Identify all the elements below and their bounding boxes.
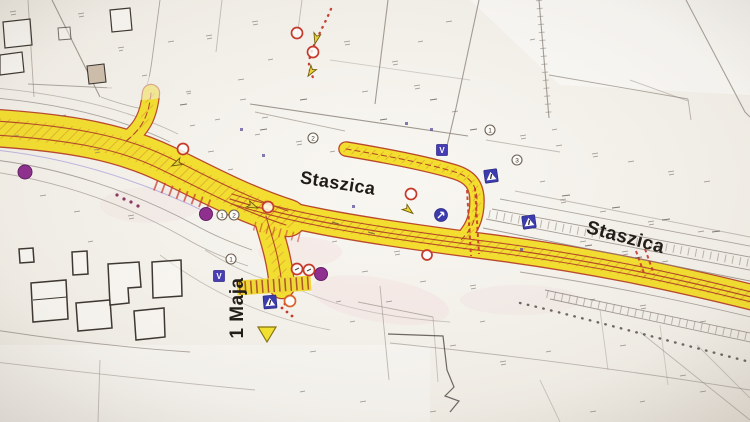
v-sign-label: V xyxy=(439,146,445,155)
v-sign-label: V xyxy=(216,272,222,281)
svg-text:3: 3 xyxy=(515,158,519,165)
svg-text:1: 1 xyxy=(229,257,233,264)
svg-text:2: 2 xyxy=(232,213,236,220)
bright-bottom xyxy=(0,345,430,422)
svg-text:1: 1 xyxy=(220,213,224,220)
site-plan-drawing: V V 1 2 1 2 1 3 Staszica Staszica 1 Maja xyxy=(0,0,750,422)
street-label-1-maja: 1 Maja xyxy=(227,277,248,338)
orange-ring xyxy=(285,296,296,307)
map-photo: V V 1 2 1 2 1 3 Staszica Staszica 1 Maja xyxy=(0,0,750,422)
svg-text:1: 1 xyxy=(488,128,492,135)
svg-text:2: 2 xyxy=(311,136,315,143)
mandatory-direction-sign xyxy=(435,209,448,222)
